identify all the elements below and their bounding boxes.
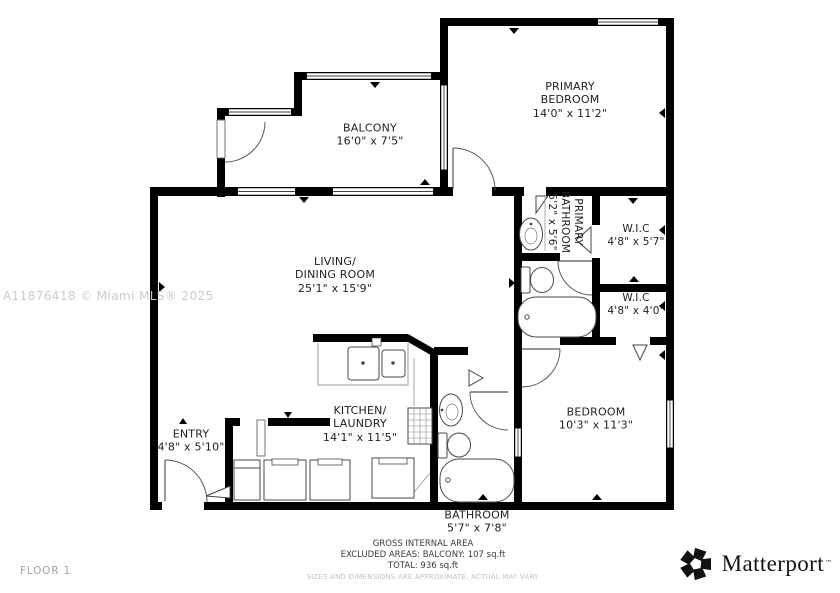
room-label-primary-bathroom: PRIMARY BATHROOM 5'2" x 5'6" [546,191,584,253]
room-dims: 5'2" x 5'6" [546,191,559,253]
matterport-logo: Matterport™ [677,545,832,583]
room-label-primary-bedroom: PRIMARY BEDROOM 14'0" x 11'2" [533,80,607,120]
disclaimer-line: SIZES AND DIMENSIONS ARE APPROXIMATE, AC… [213,574,633,582]
room-label-bathroom: BATHROOM 5'7" x 7'8" [444,509,509,536]
dishwasher-icon [372,458,414,498]
floor-label: FLOOR 1 [20,565,71,577]
room-label-wic-2: W.I.C 4'8" x 4'0" [607,292,664,318]
closet-door-leaf [257,420,265,456]
room-name: W.I.C [607,223,664,236]
room-name: PRIMARY BEDROOM [533,80,607,107]
room-label-kitchen-laundry: KITCHEN/ LAUNDRY 14'1" x 11'5" [323,404,397,444]
room-label-entry: ENTRY 4'8" x 5'10" [157,428,224,455]
primary-bath-toilet-icon [521,267,554,293]
room-label-balcony: BALCONY 16'0" x 7'5" [336,122,403,149]
room-label-wic-1: W.I.C 4'8" x 5'7" [607,223,664,249]
excluded-areas-line: EXCLUDED AREAS: BALCONY: 107 sq.ft [213,551,633,560]
room-name: PRIMARY BATHROOM [559,191,585,253]
room-dims: 4'8" x 5'10" [157,441,224,454]
primary-bath-sink-icon [520,218,543,250]
room-name: BEDROOM [559,406,633,419]
room-label-bedroom: BEDROOM 10'3" x 11'3" [559,406,633,433]
entry-door-arc [165,460,207,502]
window-bedroom-right [667,400,673,448]
cabinet-icon [310,459,350,500]
slider-living-balcony-right [332,188,434,195]
room-name: BALCONY [336,122,403,135]
primary-bath-tub-icon [518,297,596,337]
area-summary: GROSS INTERNAL AREA EXCLUDED AREAS: BALC… [213,540,633,582]
balcony-door-leaf [217,120,225,158]
window-primary-bedroom-top [597,19,659,25]
room-name: KITCHEN/ LAUNDRY [323,404,397,431]
opening-bathroom-bedroom [515,428,521,457]
room-name: BATHROOM [444,509,509,522]
stove-icon [408,408,432,444]
bathroom-door-arc [470,392,508,430]
bathroom-sink-icon [440,394,463,426]
room-name: LIVING/ DINING ROOM [295,255,375,282]
room-dims: 16'0" x 7'5" [336,135,403,148]
room-dims: 25'1" x 15'9" [295,282,375,295]
watermark-text: A11876418 © Miami MLS® 2025 [3,289,214,303]
balcony-door-arc [225,122,265,162]
room-dims: 4'8" x 5'7" [607,236,664,249]
kitchen-sink-icon [348,338,405,380]
primary-bedroom-door-arc [453,148,495,190]
window-balcony-top [306,73,432,79]
primary-bath-inner-door-arc [558,261,592,295]
washer-icon [234,460,260,500]
window-balcony-primary-bedroom [441,85,447,170]
room-name: ENTRY [157,428,224,441]
gross-internal-area-line: GROSS INTERNAL AREA [213,540,633,549]
room-dims: 10'3" x 11'3" [559,419,633,432]
dryer-icon [264,459,306,500]
room-name: W.I.C [607,292,664,305]
matterport-pinwheel-icon [677,545,715,583]
room-dims: 14'1" x 11'5" [323,431,397,444]
room-dims: 4'8" x 4'0" [607,305,664,318]
total-area-line: TOTAL: 936 sq.ft [213,562,633,571]
bathroom-tub-icon [440,459,514,502]
entry-closet-door-wedge [206,486,230,498]
bathroom-toilet-icon [438,433,471,458]
matterport-trademark: ™ [825,559,832,567]
floor-plan-canvas: PRIMARY BEDROOM 14'0" x 11'2" BALCONY 16… [0,0,840,593]
wic2-door-wedge [633,345,647,360]
bedroom-door-arc [522,349,560,387]
room-label-living-dining: LIVING/ DINING ROOM 25'1" x 15'9" [295,255,375,295]
matterport-wordmark: Matterport [722,551,824,576]
window-balcony-upper-left [228,109,292,115]
slider-living-balcony-left [237,188,296,195]
room-dims: 5'7" x 7'8" [444,522,509,535]
room-dims: 14'0" x 11'2" [533,107,607,120]
hall-door-wedge [469,370,483,386]
